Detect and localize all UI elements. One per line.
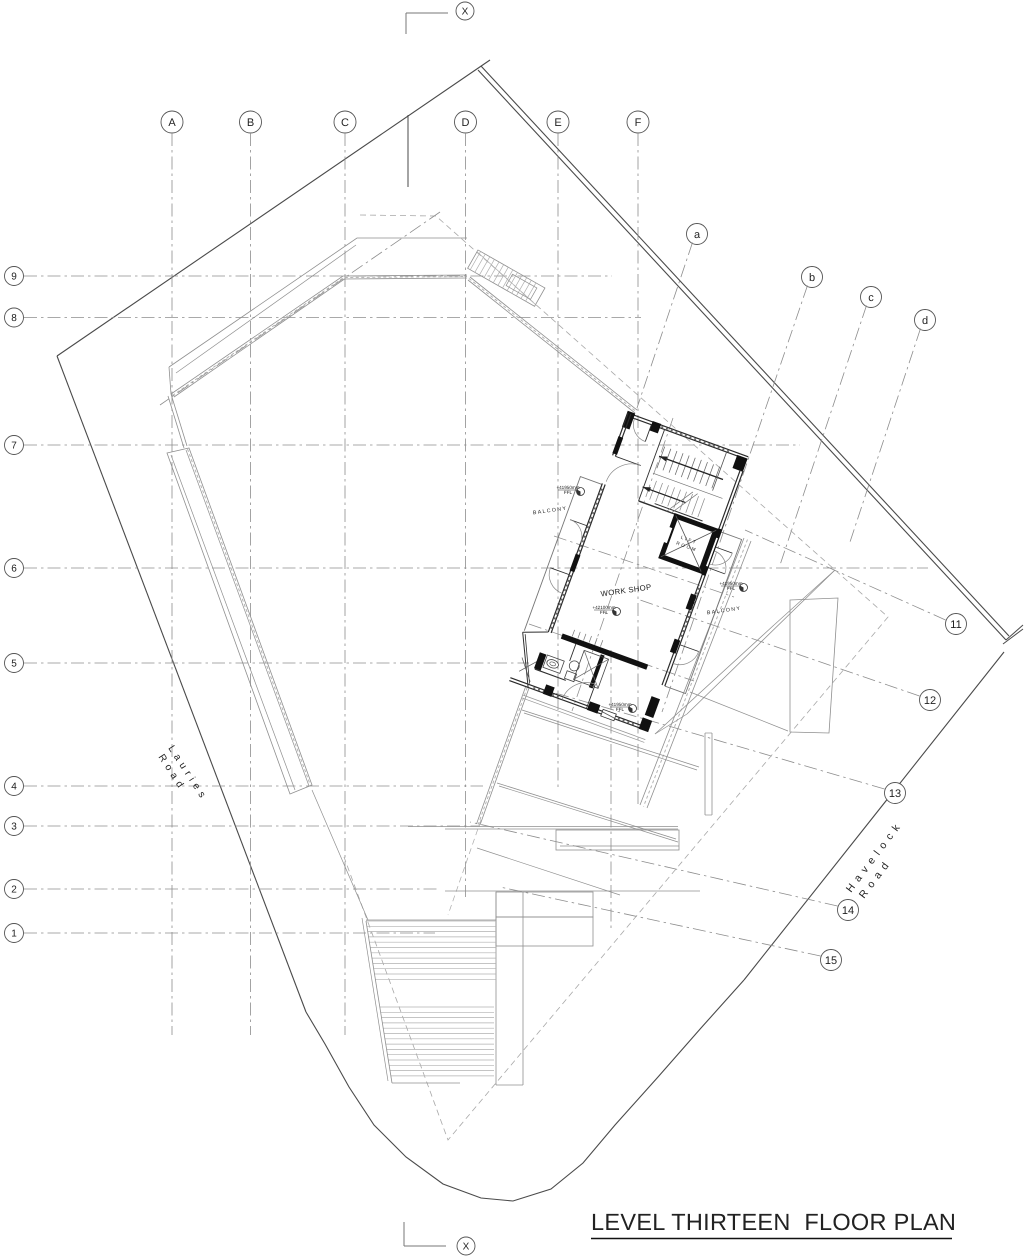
svg-text:15: 15 bbox=[825, 955, 837, 967]
svg-text:C: C bbox=[341, 117, 349, 129]
svg-text:FFL: FFL bbox=[600, 610, 609, 615]
svg-text:E: E bbox=[554, 117, 561, 129]
svg-text:8: 8 bbox=[11, 313, 17, 324]
svg-text:BALCONY: BALCONY bbox=[707, 606, 742, 617]
svg-text:BALCONY: BALCONY bbox=[533, 506, 568, 517]
svg-text:WORK SHOP: WORK SHOP bbox=[600, 582, 652, 598]
svg-text:X: X bbox=[463, 1242, 470, 1253]
svg-text:6: 6 bbox=[11, 564, 17, 575]
svg-text:5: 5 bbox=[11, 659, 17, 670]
svg-text:1: 1 bbox=[11, 929, 17, 940]
svg-text:c: c bbox=[868, 292, 874, 304]
svg-text:13: 13 bbox=[889, 788, 901, 800]
svg-text:A: A bbox=[168, 117, 176, 129]
svg-text:FFL: FFL bbox=[727, 586, 736, 591]
svg-text:FFL: FFL bbox=[616, 707, 625, 712]
svg-text:7: 7 bbox=[11, 441, 17, 452]
svg-text:F: F bbox=[635, 117, 642, 129]
svg-text:9: 9 bbox=[11, 272, 17, 283]
svg-text:4: 4 bbox=[11, 782, 17, 793]
svg-text:2: 2 bbox=[11, 885, 17, 896]
svg-text:b: b bbox=[809, 272, 815, 284]
svg-text:FFL: FFL bbox=[564, 490, 573, 495]
svg-text:D: D bbox=[462, 117, 470, 129]
svg-text:a: a bbox=[694, 229, 701, 241]
svg-text:14: 14 bbox=[842, 905, 854, 917]
svg-text:12: 12 bbox=[924, 695, 936, 707]
svg-text:d: d bbox=[922, 315, 928, 327]
svg-text:3: 3 bbox=[11, 822, 17, 833]
svg-text:B: B bbox=[247, 117, 254, 129]
svg-text:LEVEL THIRTEEN FLOOR PLAN: LEVEL THIRTEEN FLOOR PLAN bbox=[591, 1209, 956, 1235]
svg-text:11: 11 bbox=[950, 619, 961, 631]
svg-text:X: X bbox=[462, 7, 469, 18]
